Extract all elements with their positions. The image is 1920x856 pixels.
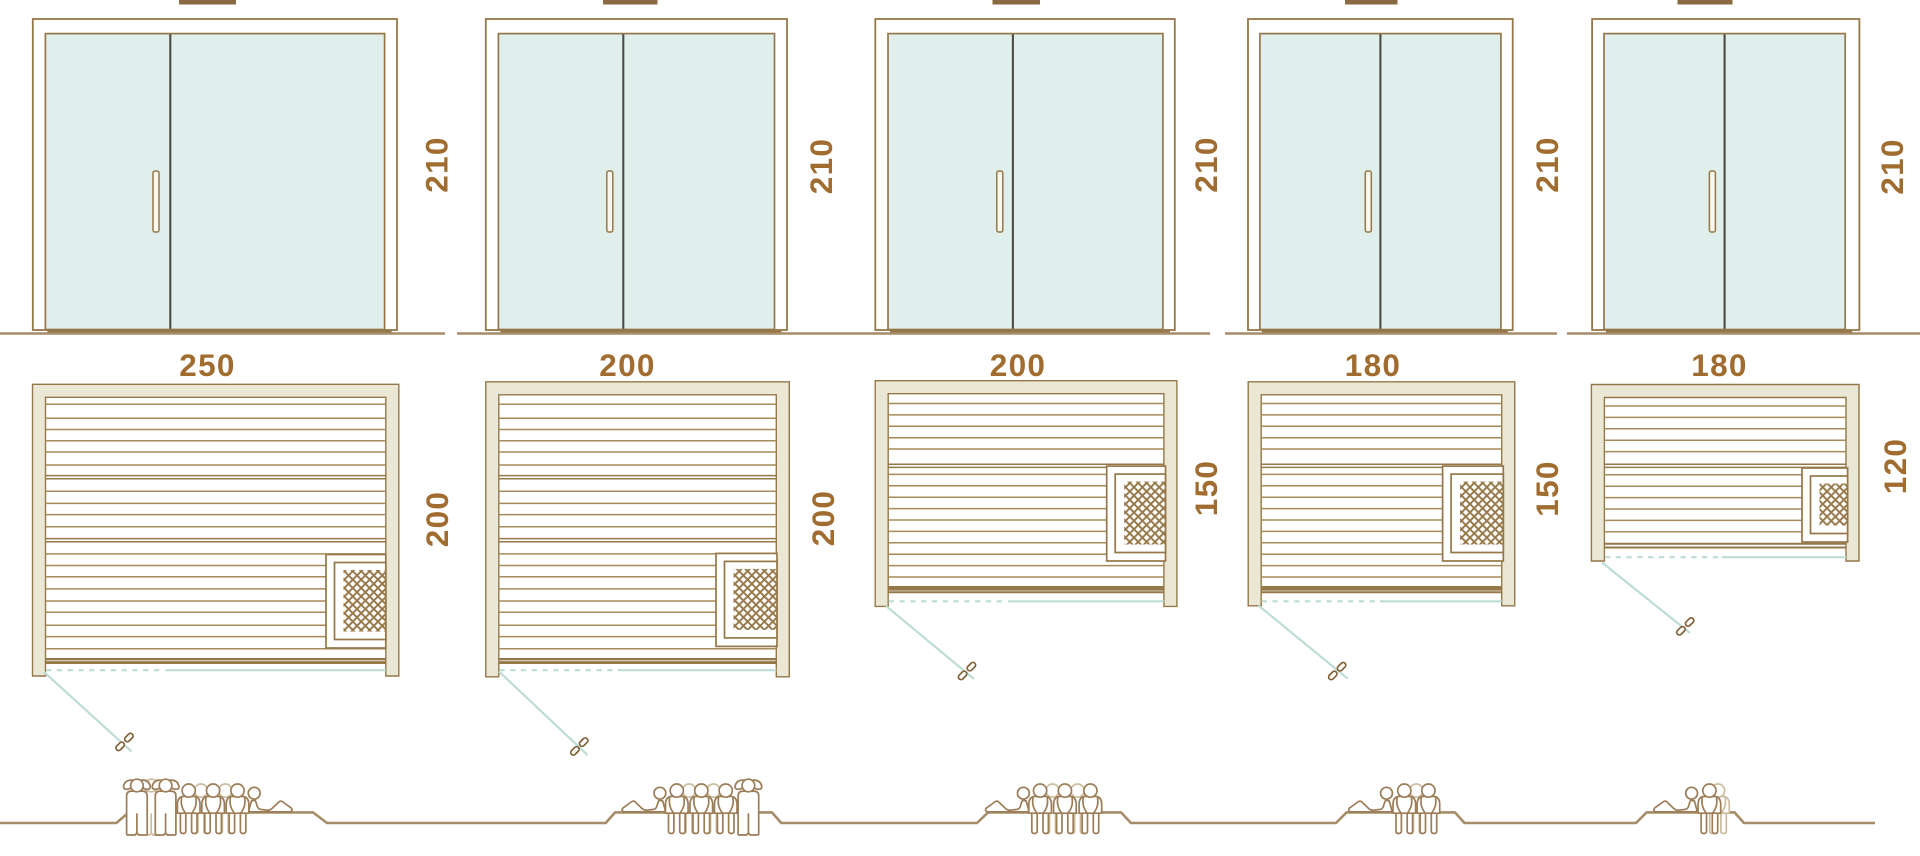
- svg-text:180: 180: [1691, 347, 1747, 383]
- svg-text:120: 120: [1877, 438, 1913, 494]
- svg-text:210: 210: [803, 138, 839, 194]
- svg-text:250: 250: [179, 347, 235, 383]
- svg-text:210: 210: [1529, 136, 1565, 192]
- svg-text:150: 150: [1529, 460, 1565, 516]
- svg-text:180: 180: [1345, 347, 1401, 383]
- svg-text:200: 200: [599, 347, 655, 383]
- svg-text:150: 150: [1188, 460, 1224, 516]
- svg-text:200: 200: [990, 347, 1046, 383]
- svg-text:210: 210: [419, 136, 455, 192]
- svg-text:210: 210: [1188, 136, 1224, 192]
- svg-text:200: 200: [805, 490, 841, 546]
- svg-text:200: 200: [419, 491, 455, 547]
- svg-text:210: 210: [1874, 138, 1910, 194]
